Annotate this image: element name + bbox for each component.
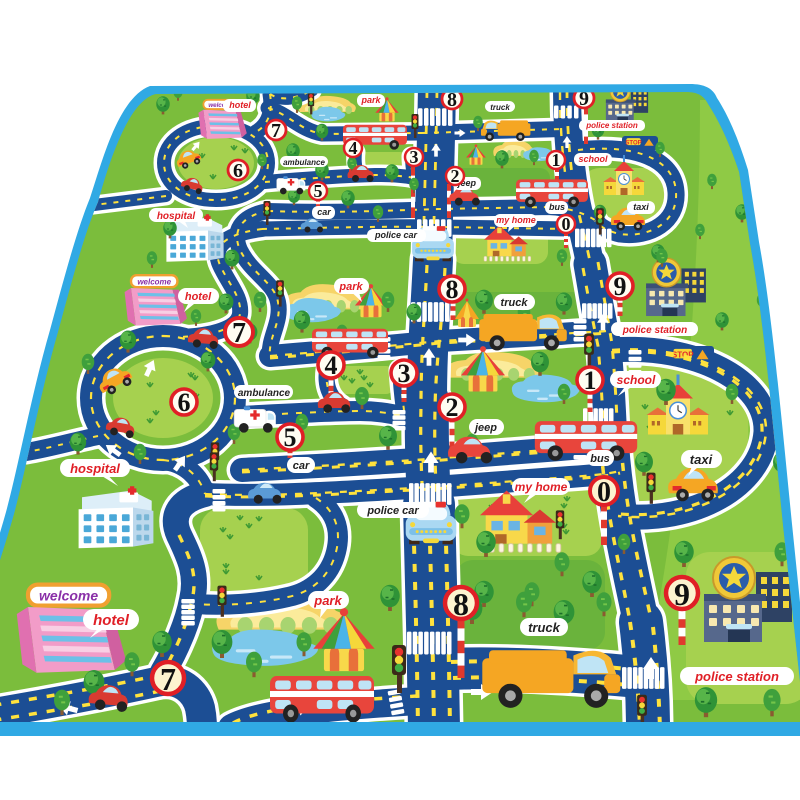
svg-text:police car: police car (366, 505, 419, 517)
svg-text:6: 6 (233, 160, 243, 182)
svg-text:truck: truck (528, 620, 561, 635)
svg-text:ambulance: ambulance (238, 388, 291, 399)
svg-text:park: park (313, 593, 342, 608)
svg-text:police station: police station (585, 121, 638, 130)
svg-text:police station: police station (622, 325, 687, 336)
svg-text:9: 9 (614, 272, 627, 301)
svg-text:bus: bus (549, 202, 565, 212)
svg-text:3: 3 (410, 147, 419, 167)
svg-text:car: car (293, 460, 310, 472)
svg-text:my home: my home (496, 215, 536, 225)
svg-text:STOP: STOP (625, 140, 641, 146)
svg-text:park: park (360, 95, 381, 105)
svg-text:2: 2 (446, 393, 459, 422)
svg-text:7: 7 (232, 318, 246, 349)
svg-text:4: 4 (349, 138, 358, 158)
svg-text:jeep: jeep (473, 422, 497, 434)
svg-text:3: 3 (398, 359, 411, 388)
svg-text:truck: truck (490, 103, 510, 112)
svg-text:5: 5 (314, 181, 323, 201)
svg-text:police station: police station (694, 669, 779, 684)
svg-text:2: 2 (451, 166, 460, 186)
svg-text:police car: police car (374, 230, 418, 240)
svg-text:1: 1 (584, 366, 597, 395)
svg-text:truck: truck (501, 297, 529, 309)
svg-text:welcome: welcome (39, 588, 98, 604)
svg-text:taxi: taxi (633, 202, 649, 212)
svg-text:6: 6 (178, 388, 191, 417)
svg-text:taxi: taxi (690, 452, 713, 467)
svg-text:8: 8 (453, 586, 469, 622)
svg-text:hotel: hotel (185, 291, 212, 303)
svg-text:hospital: hospital (157, 211, 196, 222)
svg-text:7: 7 (271, 120, 281, 142)
svg-text:hotel: hotel (229, 100, 251, 110)
svg-text:my home: my home (515, 480, 568, 494)
svg-text:5: 5 (284, 423, 297, 452)
svg-text:7: 7 (160, 661, 176, 697)
svg-text:car: car (317, 207, 331, 217)
svg-text:school: school (578, 154, 608, 164)
svg-text:9: 9 (674, 576, 690, 612)
svg-text:0: 0 (597, 477, 611, 508)
svg-text:1: 1 (552, 150, 561, 170)
svg-text:school: school (617, 373, 656, 387)
svg-text:0: 0 (562, 214, 571, 234)
svg-text:8: 8 (446, 275, 459, 304)
svg-text:hotel: hotel (93, 612, 130, 629)
svg-text:4: 4 (325, 351, 338, 380)
svg-text:ambulance: ambulance (283, 158, 325, 167)
svg-text:bus: bus (590, 453, 610, 465)
svg-text:hospital: hospital (70, 461, 120, 476)
svg-text:welcome: welcome (137, 277, 171, 286)
svg-text:park: park (338, 281, 363, 293)
